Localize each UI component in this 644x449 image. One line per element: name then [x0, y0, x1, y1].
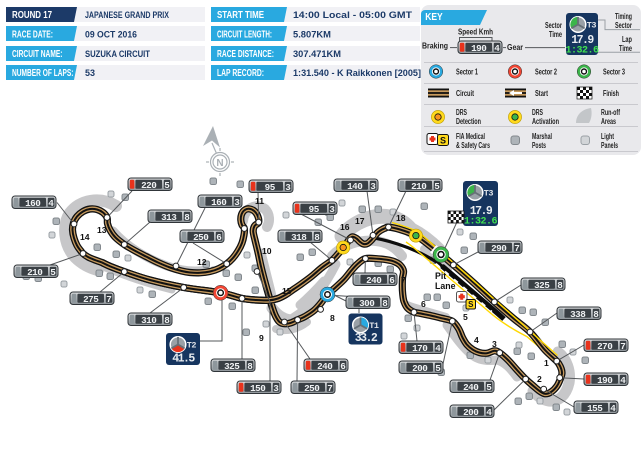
- svg-text:200: 200: [412, 363, 428, 374]
- svg-text:240: 240: [463, 382, 479, 393]
- svg-text:Lap: Lap: [622, 35, 632, 44]
- svg-text:Sector: Sector: [615, 21, 632, 30]
- svg-text:16: 16: [340, 222, 350, 232]
- svg-text:325: 325: [224, 361, 240, 372]
- svg-text:6: 6: [421, 299, 426, 309]
- svg-text:13: 13: [97, 225, 107, 235]
- svg-text:8: 8: [164, 315, 170, 326]
- svg-text:5: 5: [435, 363, 441, 374]
- svg-text:3: 3: [234, 197, 240, 208]
- svg-text:33.2: 33.2: [355, 332, 378, 345]
- svg-text:Braking: Braking: [422, 42, 448, 51]
- svg-text:5: 5: [434, 181, 440, 192]
- svg-text:S: S: [468, 300, 474, 309]
- svg-text:& Safety Cars: & Safety Cars: [456, 141, 490, 150]
- svg-text:5: 5: [50, 267, 56, 278]
- svg-text:5: 5: [164, 180, 170, 191]
- svg-text:T1: T1: [369, 321, 379, 331]
- svg-text:7: 7: [401, 275, 406, 285]
- svg-text:338: 338: [570, 309, 586, 320]
- svg-text:53: 53: [85, 68, 95, 79]
- svg-text:307.471KM: 307.471KM: [293, 49, 341, 60]
- svg-text:6: 6: [389, 275, 395, 286]
- svg-text:250: 250: [193, 232, 209, 243]
- svg-text:240: 240: [366, 275, 382, 286]
- svg-text:9: 9: [259, 333, 264, 343]
- svg-text:Panels: Panels: [601, 141, 618, 150]
- svg-text:3: 3: [329, 204, 335, 215]
- svg-text:5.807KM: 5.807KM: [293, 30, 331, 41]
- svg-text:318: 318: [291, 232, 307, 243]
- svg-text:CIRCUIT NAME:: CIRCUIT NAME:: [12, 49, 63, 60]
- svg-text:RACE DATE:: RACE DATE:: [12, 30, 53, 41]
- svg-text:Speed Kmh: Speed Kmh: [458, 28, 493, 37]
- svg-text:Sector 1: Sector 1: [456, 68, 478, 77]
- svg-text:Sector 2: Sector 2: [535, 68, 557, 77]
- svg-text:T3: T3: [587, 21, 597, 31]
- svg-text:6: 6: [340, 361, 346, 372]
- svg-text:210: 210: [411, 181, 427, 192]
- svg-text:210: 210: [27, 267, 43, 278]
- svg-text:4: 4: [435, 343, 441, 354]
- svg-text:Detection: Detection: [456, 117, 481, 126]
- svg-text:8: 8: [247, 361, 253, 372]
- svg-text:4: 4: [610, 403, 616, 414]
- svg-text:Posts: Posts: [532, 141, 546, 150]
- svg-text:Gear: Gear: [507, 43, 523, 52]
- svg-text:8: 8: [314, 232, 320, 243]
- svg-text:4: 4: [474, 335, 479, 345]
- svg-text:240: 240: [317, 361, 333, 372]
- svg-text:140: 140: [347, 181, 363, 192]
- svg-text:5: 5: [463, 312, 468, 322]
- svg-text:10: 10: [262, 246, 272, 256]
- svg-text:T3: T3: [484, 189, 494, 199]
- svg-text:190: 190: [597, 375, 613, 386]
- svg-text:NUMBER OF LAPS:: NUMBER OF LAPS:: [12, 68, 74, 79]
- svg-text:4: 4: [620, 375, 626, 386]
- svg-text:Pit: Pit: [435, 271, 446, 281]
- svg-text:Sector 3: Sector 3: [603, 68, 625, 77]
- svg-text:8: 8: [330, 313, 335, 323]
- svg-text:Timing: Timing: [615, 12, 632, 21]
- svg-text:155: 155: [587, 403, 603, 414]
- svg-text:SUZUKA CIRCUIT: SUZUKA CIRCUIT: [85, 49, 150, 60]
- svg-text:275: 275: [83, 294, 99, 305]
- svg-text:313: 313: [161, 212, 177, 223]
- svg-text:Run-off: Run-off: [601, 108, 620, 117]
- svg-text:DRS: DRS: [532, 108, 543, 117]
- svg-text:300: 300: [359, 298, 375, 309]
- svg-text:S: S: [440, 136, 446, 146]
- svg-text:250: 250: [304, 383, 320, 394]
- svg-text:1:32.6: 1:32.6: [565, 46, 599, 57]
- svg-text:7: 7: [327, 383, 333, 394]
- svg-text:ROUND 17: ROUND 17: [12, 10, 52, 21]
- svg-text:Time: Time: [619, 44, 632, 53]
- svg-text:8: 8: [557, 280, 563, 291]
- svg-text:220: 220: [141, 180, 157, 191]
- svg-text:1: 1: [544, 358, 549, 368]
- svg-text:09 OCT 2016: 09 OCT 2016: [85, 30, 137, 41]
- svg-text:Areas: Areas: [601, 117, 616, 126]
- svg-text:T2: T2: [187, 341, 197, 351]
- svg-text:7: 7: [620, 341, 626, 352]
- svg-text:Light: Light: [601, 132, 614, 141]
- svg-text:2: 2: [537, 374, 542, 384]
- svg-text:190: 190: [471, 43, 487, 54]
- svg-text:160: 160: [211, 197, 227, 208]
- svg-text:DRS: DRS: [456, 108, 467, 117]
- svg-text:7: 7: [106, 294, 112, 305]
- svg-text:95: 95: [265, 182, 276, 193]
- svg-text:15: 15: [282, 286, 292, 296]
- svg-text:270: 270: [597, 341, 613, 352]
- svg-text:310: 310: [141, 315, 157, 326]
- svg-text:Time: Time: [549, 30, 562, 39]
- svg-text:160: 160: [25, 198, 41, 209]
- svg-text:JAPANESE GRAND PRIX: JAPANESE GRAND PRIX: [85, 10, 169, 21]
- svg-text:3: 3: [285, 182, 291, 193]
- svg-text:1:31.540 - K Raikkonen [2005]: 1:31.540 - K Raikkonen [2005]: [293, 68, 421, 79]
- svg-text:4: 4: [48, 198, 54, 209]
- svg-text:RACE DISTANCE:: RACE DISTANCE:: [217, 49, 274, 60]
- svg-text:17: 17: [355, 216, 365, 226]
- svg-text:4: 4: [494, 43, 500, 54]
- svg-text:Marshal: Marshal: [532, 132, 552, 141]
- svg-text:170: 170: [412, 343, 428, 354]
- svg-text:CIRCUIT LENGTH:: CIRCUIT LENGTH:: [217, 30, 272, 41]
- svg-text:N: N: [216, 158, 223, 169]
- svg-text:18: 18: [396, 213, 406, 223]
- svg-text:8: 8: [382, 298, 388, 309]
- svg-text:LAP RECORD:: LAP RECORD:: [217, 68, 264, 79]
- svg-text:8: 8: [593, 309, 599, 320]
- svg-text:5: 5: [486, 382, 492, 393]
- svg-text:Activation: Activation: [532, 117, 559, 126]
- svg-text:290: 290: [491, 243, 507, 254]
- svg-text:Sector: Sector: [545, 21, 562, 30]
- svg-text:95: 95: [309, 204, 320, 215]
- svg-text:11: 11: [255, 196, 264, 206]
- svg-text:12: 12: [197, 257, 207, 267]
- svg-text:14: 14: [80, 232, 90, 242]
- svg-text:7: 7: [514, 243, 520, 254]
- svg-text:200: 200: [463, 407, 479, 418]
- svg-text:41.5: 41.5: [172, 353, 195, 366]
- svg-text:3: 3: [370, 181, 376, 192]
- svg-text:325: 325: [534, 280, 550, 291]
- svg-text:150: 150: [250, 383, 266, 394]
- svg-text:FIA Medical: FIA Medical: [456, 132, 485, 141]
- svg-text:Circuit: Circuit: [456, 89, 474, 98]
- svg-text:14:00 Local - 05:00 GMT: 14:00 Local - 05:00 GMT: [293, 10, 412, 21]
- svg-text:6: 6: [216, 232, 222, 243]
- svg-text:4: 4: [486, 407, 492, 418]
- svg-text:3: 3: [492, 339, 497, 349]
- svg-text:START TIME: START TIME: [217, 10, 264, 21]
- svg-text:Lane: Lane: [435, 281, 456, 291]
- svg-text:8: 8: [184, 212, 190, 223]
- svg-text:3: 3: [273, 383, 279, 394]
- svg-text:Start: Start: [535, 89, 548, 98]
- svg-text:Finish: Finish: [603, 89, 619, 98]
- svg-text:1:32.6: 1:32.6: [464, 217, 498, 228]
